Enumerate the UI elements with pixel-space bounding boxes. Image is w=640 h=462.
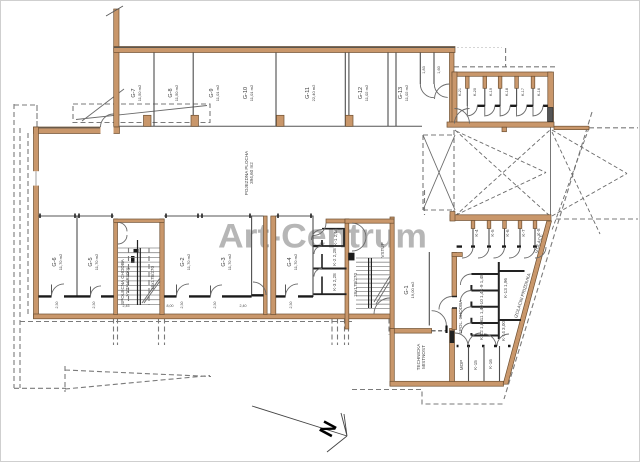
svg-text:K-4: K-4 xyxy=(474,229,479,237)
svg-text:11,01 m2: 11,01 m2 xyxy=(215,84,220,101)
svg-text:MOP: MOP xyxy=(459,360,464,370)
svg-text:11,02 m2: 11,02 m2 xyxy=(364,84,369,101)
svg-text:K-6: K-6 xyxy=(505,229,510,237)
svg-text:11,01 m2: 11,01 m2 xyxy=(249,84,254,101)
svg-text:11,70 m2: 11,70 m2 xyxy=(293,253,298,270)
svg-text:K-12 1,48: K-12 1,48 xyxy=(479,320,484,340)
svg-text:8,00: 8,00 xyxy=(167,304,174,308)
svg-text:2,30: 2,30 xyxy=(92,302,96,309)
svg-text:11,70 m2: 11,70 m2 xyxy=(186,253,191,270)
svg-text:19,00 m2: 19,00 m2 xyxy=(410,281,415,298)
svg-text:K-17: K-17 xyxy=(521,88,525,96)
svg-text:18x178/270: 18x178/270 xyxy=(150,266,155,290)
svg-text:K-20: K-20 xyxy=(473,88,477,96)
svg-text:2,30: 2,30 xyxy=(180,302,184,309)
svg-text:22,40 m2: 22,40 m2 xyxy=(311,84,316,101)
svg-text:VSTUP: VSTUP xyxy=(380,242,385,257)
svg-text:K-15: K-15 xyxy=(473,360,478,370)
svg-text:K-19: K-19 xyxy=(489,88,493,96)
svg-text:2,30: 2,30 xyxy=(55,302,59,309)
svg-text:K-13 1,96: K-13 1,96 xyxy=(503,278,508,298)
svg-text:2,30: 2,30 xyxy=(289,302,293,309)
svg-text:K-1 2,16: K-1 2,16 xyxy=(333,228,338,246)
svg-text:2,30: 2,30 xyxy=(213,302,217,309)
svg-text:K-9 1,48: K-9 1,48 xyxy=(479,274,484,292)
svg-text:18x178/270: 18x178/270 xyxy=(353,273,358,297)
svg-text:11,70 m2: 11,70 m2 xyxy=(58,253,63,270)
svg-text:K-16: K-16 xyxy=(488,359,493,369)
svg-text:1,60: 1,60 xyxy=(437,66,441,73)
svg-text:Art-Centrum: Art-Centrum xyxy=(218,218,427,256)
svg-text:SPOL. CHODBA: SPOL. CHODBA xyxy=(458,299,463,334)
svg-text:K-2 2,28: K-2 2,28 xyxy=(332,248,337,266)
svg-text:K-3 2,28: K-3 2,28 xyxy=(332,273,337,291)
svg-text:11,50 m2: 11,50 m2 xyxy=(137,84,142,101)
svg-text:11,70 m2: 11,70 m2 xyxy=(94,253,99,270)
svg-text:K-5: K-5 xyxy=(490,229,495,237)
svg-text:K-21: K-21 xyxy=(458,88,462,96)
svg-text:VYTAH 630kg: VYTAH 630kg xyxy=(125,267,130,296)
svg-text:K-14 3,00: K-14 3,00 xyxy=(501,321,506,341)
svg-text:1,83: 1,83 xyxy=(422,66,426,73)
svg-text:11,02 m2: 11,02 m2 xyxy=(404,84,409,101)
svg-text:394,60 m2: 394,60 m2 xyxy=(249,162,254,184)
svg-text:11,70 m2: 11,70 m2 xyxy=(227,253,232,270)
svg-text:K-18: K-18 xyxy=(505,88,509,96)
svg-text:2,40: 2,40 xyxy=(240,304,247,308)
svg-text:K-7: K-7 xyxy=(521,229,526,237)
svg-text:11,50 m2: 11,50 m2 xyxy=(174,84,179,101)
svg-text:K-16: K-16 xyxy=(537,88,541,96)
svg-text:MISTNOST: MISTNOST xyxy=(421,345,426,369)
